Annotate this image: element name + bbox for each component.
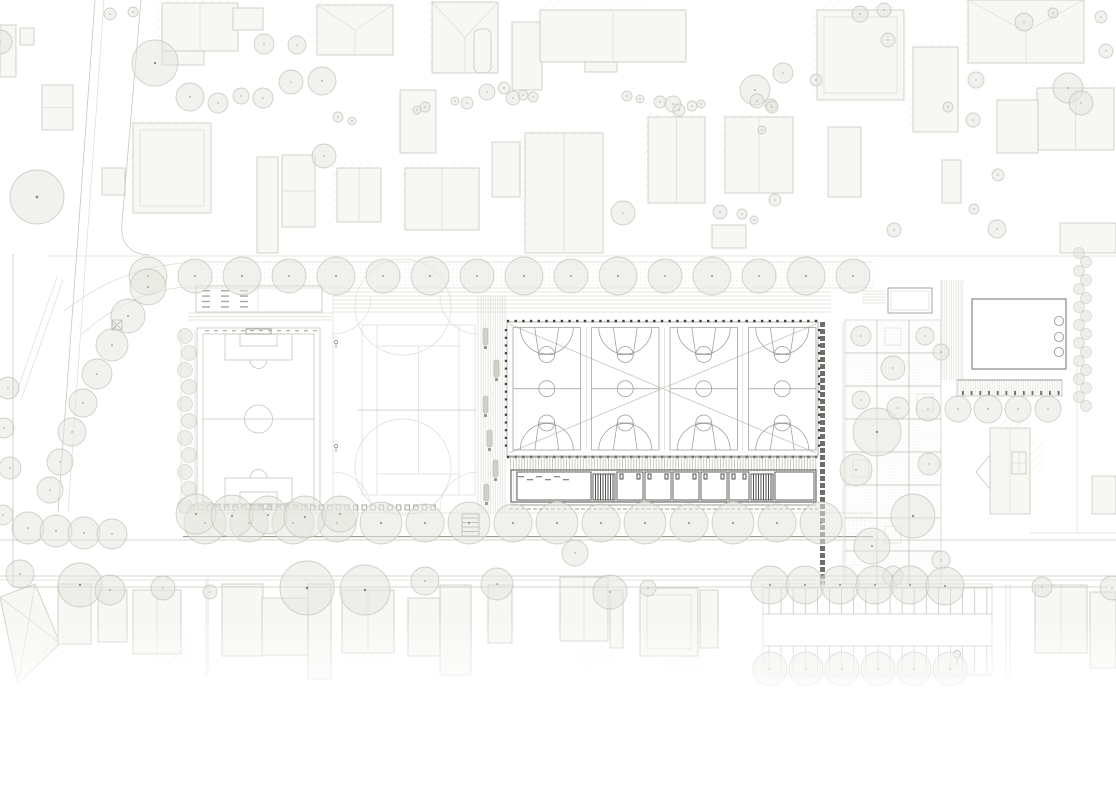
micro-text (277, 330, 281, 331)
stair (593, 474, 615, 500)
column (505, 437, 507, 439)
micro-text (223, 330, 227, 331)
pergola-post (971, 391, 973, 395)
micro-text (202, 306, 210, 307)
room (673, 472, 699, 500)
micro-text (268, 330, 272, 331)
column (505, 406, 507, 408)
pool (888, 288, 932, 313)
building-footprint (492, 142, 520, 197)
column (505, 391, 507, 393)
bench-foot (485, 502, 488, 505)
micro-text (286, 330, 290, 331)
walkway (480, 296, 507, 512)
hall-east-facade (820, 322, 825, 585)
column (815, 320, 817, 322)
column (818, 398, 820, 400)
column (505, 344, 507, 346)
column (715, 320, 717, 322)
sports-hall (505, 320, 843, 585)
micro-text (563, 479, 569, 480)
garden-cell (877, 320, 909, 353)
building-footprint (1060, 223, 1116, 253)
goal (246, 329, 271, 334)
building-footprint (20, 28, 34, 45)
column (505, 375, 507, 377)
corner-arc (333, 296, 371, 334)
column (818, 337, 820, 339)
building-footprint (233, 8, 263, 30)
tree (0, 418, 14, 438)
garden-cell (877, 452, 909, 485)
bush (1081, 347, 1092, 358)
bench (483, 328, 488, 345)
building-footprint (585, 62, 617, 72)
column (653, 320, 655, 322)
stair (751, 474, 773, 500)
drawing-fade-edge (0, 620, 1116, 800)
bleacher-band (509, 457, 817, 470)
bench (494, 360, 499, 377)
house (1092, 476, 1116, 514)
column (638, 320, 640, 322)
fence-tick (405, 505, 410, 510)
micro-text (221, 295, 229, 296)
column (761, 320, 763, 322)
bush (1074, 284, 1085, 295)
column (769, 320, 771, 322)
hedge-bush (178, 465, 193, 480)
bench (487, 430, 492, 447)
micro-text (304, 330, 308, 331)
bench-foot (484, 346, 487, 349)
outdoor-courts (333, 259, 478, 515)
hedge-bush (178, 397, 193, 412)
column (505, 414, 507, 416)
pergola-post (1023, 391, 1025, 395)
hedge-bush (178, 431, 193, 446)
column (505, 337, 507, 339)
pergola-post (1049, 391, 1051, 395)
building-footprint (133, 123, 211, 213)
column (818, 429, 820, 431)
column (818, 414, 820, 416)
pergola-post (1058, 391, 1060, 395)
column (630, 320, 632, 322)
column (818, 383, 820, 385)
micro-text (545, 479, 551, 480)
micro-text (240, 306, 248, 307)
building-footprint (817, 10, 904, 100)
bush (1081, 329, 1092, 340)
bush (1074, 248, 1085, 259)
bench-foot (488, 448, 491, 451)
column (553, 320, 555, 322)
column (505, 352, 507, 354)
column (507, 456, 509, 458)
bush (1074, 338, 1085, 349)
pergola-post (988, 391, 990, 395)
column (818, 445, 820, 447)
micro-text (259, 330, 263, 331)
micro-text (313, 330, 317, 331)
column (505, 329, 507, 331)
room (645, 472, 671, 500)
building-footprint (712, 225, 746, 248)
net-post (334, 444, 337, 447)
net-post (334, 340, 337, 343)
column (799, 320, 801, 322)
court-circle (355, 419, 451, 515)
pavilion-plan (196, 286, 322, 312)
bush (1081, 311, 1092, 322)
column (607, 320, 609, 322)
pavilion (196, 286, 322, 312)
column (776, 320, 778, 322)
site-plan-canvas (0, 0, 1116, 800)
micro-text (527, 479, 533, 480)
column (818, 368, 820, 370)
context-buildings-north (0, 0, 1116, 253)
column (584, 320, 586, 322)
bench-foot (495, 378, 498, 381)
bush (1074, 392, 1085, 403)
column (505, 383, 507, 385)
column (722, 320, 724, 322)
column (818, 406, 820, 408)
column (692, 320, 694, 322)
tree (0, 377, 19, 399)
column (615, 320, 617, 322)
bush (1081, 275, 1092, 286)
micro-text (221, 306, 229, 307)
column (818, 375, 820, 377)
micro-text (202, 301, 210, 302)
column (792, 320, 794, 322)
column (684, 320, 686, 322)
micro-text (250, 330, 254, 331)
column (784, 320, 786, 322)
bench (493, 460, 498, 477)
bench (484, 484, 489, 501)
garden-cell (909, 419, 941, 452)
column (568, 320, 570, 322)
column (592, 320, 594, 322)
micro-text (240, 301, 248, 302)
column (676, 320, 678, 322)
micro-text (518, 476, 524, 477)
column (507, 320, 509, 322)
column (505, 445, 507, 447)
micro-text (221, 290, 229, 291)
pergola (957, 380, 1062, 396)
bench (483, 396, 488, 413)
bush (1081, 293, 1092, 304)
column (818, 437, 820, 439)
fade-gradient (0, 620, 1116, 705)
micro-text (536, 476, 542, 477)
bush (1074, 320, 1085, 331)
goal-area (240, 334, 277, 346)
hedge-bush (182, 448, 197, 463)
hedge-bush (178, 363, 193, 378)
column (530, 320, 532, 322)
column (753, 320, 755, 322)
room (617, 472, 643, 500)
room (701, 472, 727, 500)
tree (0, 505, 13, 525)
micro-text (214, 330, 218, 331)
column (818, 360, 820, 362)
building-footprint (942, 160, 961, 203)
column (746, 320, 748, 322)
column (522, 320, 524, 322)
column (818, 421, 820, 423)
garden-cell (845, 485, 877, 518)
bench-foot (494, 478, 497, 481)
column (730, 320, 732, 322)
column (505, 360, 507, 362)
column (707, 320, 709, 322)
column (818, 329, 820, 331)
column (576, 320, 578, 322)
building-footprint (997, 100, 1038, 153)
pergola-post (997, 391, 999, 395)
pergola-post (979, 391, 981, 395)
penalty-area (225, 334, 292, 360)
column (807, 320, 809, 322)
column (645, 320, 647, 322)
micro-text (240, 295, 248, 296)
bush (1074, 374, 1085, 385)
pergola-post (1032, 391, 1034, 395)
column (818, 344, 820, 346)
micro-text (232, 330, 236, 331)
pergola-post (1040, 391, 1042, 395)
column (545, 320, 547, 322)
bush (1074, 266, 1085, 277)
bush (1074, 302, 1085, 313)
pergola-post (1006, 391, 1008, 395)
column (699, 320, 701, 322)
building-footprint (828, 127, 861, 197)
column (661, 320, 663, 322)
bush (1081, 365, 1092, 376)
bush (1081, 401, 1092, 412)
soccer-field (178, 328, 321, 514)
column (622, 320, 624, 322)
column (538, 320, 540, 322)
paving-strip (941, 280, 963, 380)
room (775, 472, 814, 500)
building-shadow (1028, 442, 1044, 472)
bush (1081, 383, 1092, 394)
site-plan-page (0, 0, 1116, 800)
column (818, 391, 820, 393)
bush (1074, 356, 1085, 367)
building-footprint (257, 157, 278, 253)
building-footprint (913, 47, 958, 132)
gable (976, 455, 990, 489)
hedge-bush (182, 380, 197, 395)
column (738, 320, 740, 322)
column (505, 429, 507, 431)
column (515, 320, 517, 322)
micro-text (554, 476, 560, 477)
building-footprint (102, 168, 125, 195)
garden-cell (845, 353, 877, 386)
hedge-bush (182, 414, 197, 429)
pool-building (972, 299, 1066, 369)
micro-text (295, 330, 299, 331)
column (505, 398, 507, 400)
hedge-bush (182, 346, 197, 361)
bench-foot (484, 414, 487, 417)
column (818, 352, 820, 354)
bush (1081, 257, 1092, 268)
pergola-post (1014, 391, 1016, 395)
pergola-post (962, 391, 964, 395)
hedge-bush (178, 329, 193, 344)
micro-text (241, 330, 245, 331)
column (561, 320, 563, 322)
micro-text (221, 301, 229, 302)
column (599, 320, 601, 322)
blank-margin (0, 705, 1116, 800)
column (505, 368, 507, 370)
column (505, 421, 507, 423)
building-footprint (400, 90, 436, 153)
column (669, 320, 671, 322)
micro-text (205, 330, 209, 331)
micro-text (202, 295, 210, 296)
